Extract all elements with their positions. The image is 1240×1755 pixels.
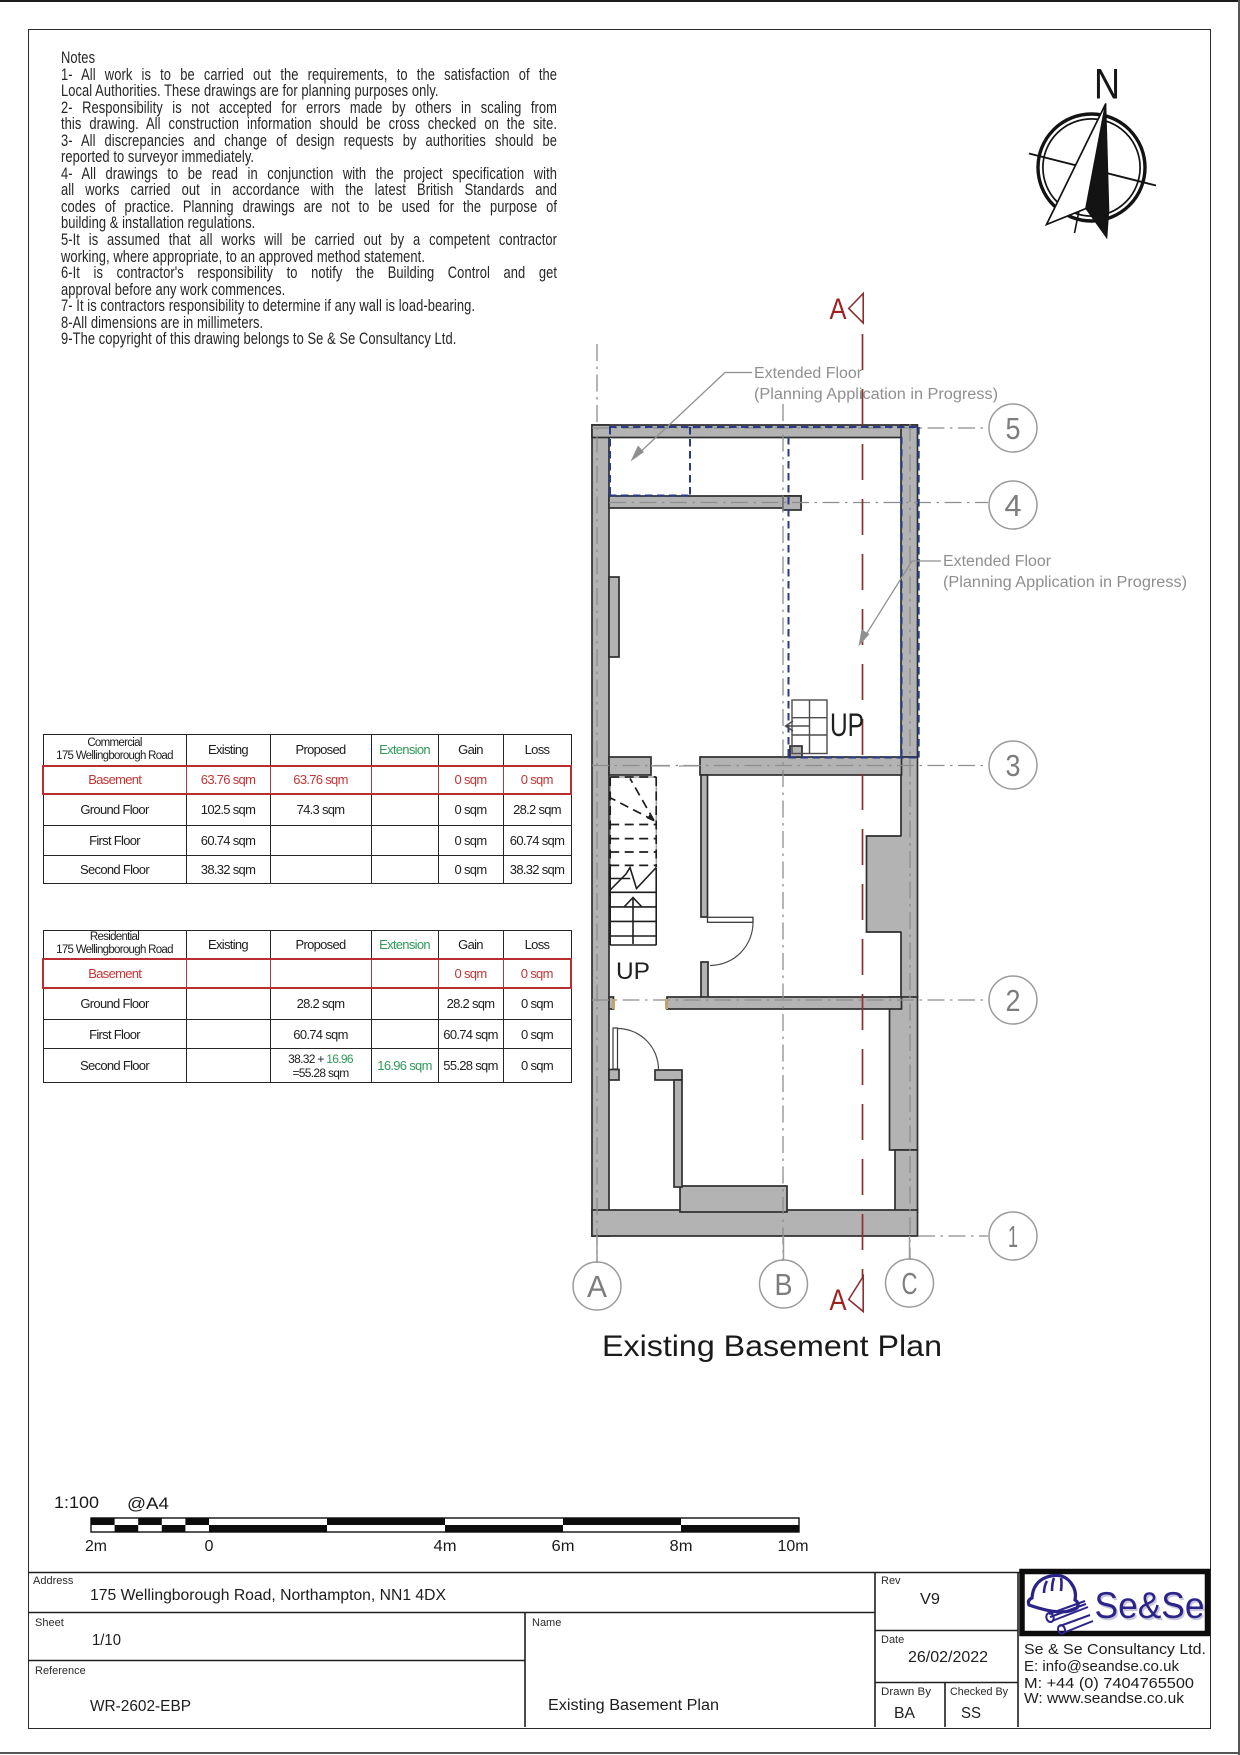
svg-text:Se&Se: Se&Se (1095, 1585, 1205, 1626)
svg-text:M: +44 (0) 7404765500: M: +44 (0) 7404765500 (1024, 1676, 1194, 1692)
svg-text:10m: 10m (778, 1538, 809, 1555)
svg-text:26/02/2022: 26/02/2022 (908, 1649, 988, 1666)
svg-text:E: info@seandse.co.uk: E: info@seandse.co.uk (1024, 1659, 1180, 1675)
svg-text:1: 1 (1008, 1219, 1018, 1254)
svg-text:2: 2 (1006, 983, 1021, 1018)
svg-text:Existing Basement Plan: Existing Basement Plan (602, 1330, 942, 1363)
svg-text:N: N (1094, 61, 1120, 109)
svg-text:4m: 4m (434, 1538, 457, 1555)
svg-text:Extended Floor: Extended Floor (943, 553, 1051, 570)
svg-text:175 Wellingborough Road, North: 175 Wellingborough Road, Northampton, NN… (90, 1587, 447, 1604)
svg-text:Existing Basement Plan: Existing Basement Plan (548, 1697, 719, 1714)
svg-text:(Planning Application in Progr: (Planning Application in Progress) (943, 574, 1187, 591)
svg-text:Rev: Rev (881, 1575, 901, 1587)
svg-text:4: 4 (1005, 488, 1022, 523)
svg-text:5: 5 (1006, 411, 1021, 446)
svg-text:0: 0 (205, 1538, 214, 1555)
svg-text:A: A (830, 1284, 847, 1317)
svg-text:Drawn By: Drawn By (881, 1686, 932, 1698)
svg-text:WR-2602-EBP: WR-2602-EBP (90, 1698, 191, 1715)
svg-text:Extended Floor: Extended Floor (754, 365, 862, 382)
svg-text:W: www.seandse.co.uk: W: www.seandse.co.uk (1024, 1691, 1185, 1707)
svg-text:6m: 6m (552, 1538, 575, 1555)
svg-text:2m: 2m (85, 1538, 107, 1555)
svg-text:(Planning Application in Progr: (Planning Application in Progress) (754, 386, 998, 403)
svg-text:BA: BA (894, 1705, 916, 1722)
svg-text:UP: UP (616, 958, 650, 985)
svg-text:Checked By: Checked By (950, 1686, 1008, 1698)
svg-text:8m: 8m (670, 1538, 693, 1555)
svg-text:1/10: 1/10 (92, 1632, 121, 1649)
svg-text:Sheet: Sheet (35, 1617, 64, 1629)
svg-text:Name: Name (532, 1617, 561, 1629)
svg-text:UP: UP (830, 707, 864, 743)
svg-text:A: A (830, 293, 847, 326)
svg-text:V9: V9 (920, 1591, 940, 1608)
svg-text:3: 3 (1006, 748, 1021, 783)
svg-text:SS: SS (961, 1705, 981, 1722)
svg-text:C: C (902, 1266, 918, 1301)
svg-text:Reference: Reference (35, 1665, 86, 1677)
svg-text:A: A (587, 1269, 607, 1304)
svg-text:1:100: 1:100 (54, 1494, 99, 1512)
svg-text:B: B (775, 1267, 793, 1302)
svg-text:Address: Address (33, 1575, 74, 1587)
svg-text:@A4: @A4 (127, 1495, 169, 1513)
svg-text:Se & Se Consultancy Ltd.: Se & Se Consultancy Ltd. (1024, 1642, 1206, 1658)
svg-text:Date: Date (881, 1634, 904, 1646)
